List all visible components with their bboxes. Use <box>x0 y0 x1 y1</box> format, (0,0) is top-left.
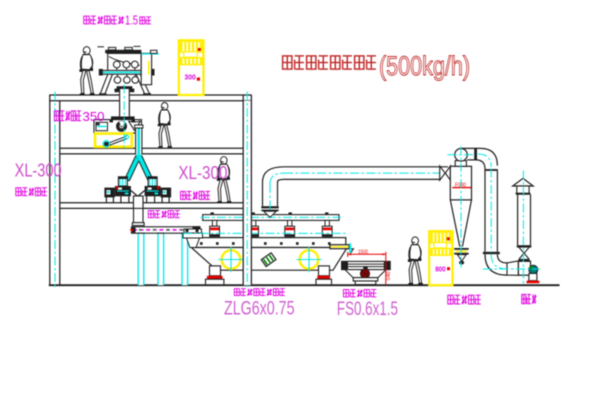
svg-text:300: 300 <box>184 72 196 81</box>
svg-text:350: 350 <box>83 109 105 124</box>
svg-text:(500kg/h): (500kg/h) <box>379 51 470 81</box>
svg-text:1500: 1500 <box>358 250 368 256</box>
svg-text:1.5: 1.5 <box>125 13 138 28</box>
svg-text:540: 540 <box>386 271 392 280</box>
svg-text:XL-300: XL-300 <box>15 160 62 180</box>
svg-text:FS0.6x1.5: FS0.6x1.5 <box>337 299 398 320</box>
svg-text:XL-300: XL-300 <box>178 163 227 183</box>
svg-text:ZLG6x0.75: ZLG6x0.75 <box>224 299 295 320</box>
svg-text:800: 800 <box>435 267 446 274</box>
